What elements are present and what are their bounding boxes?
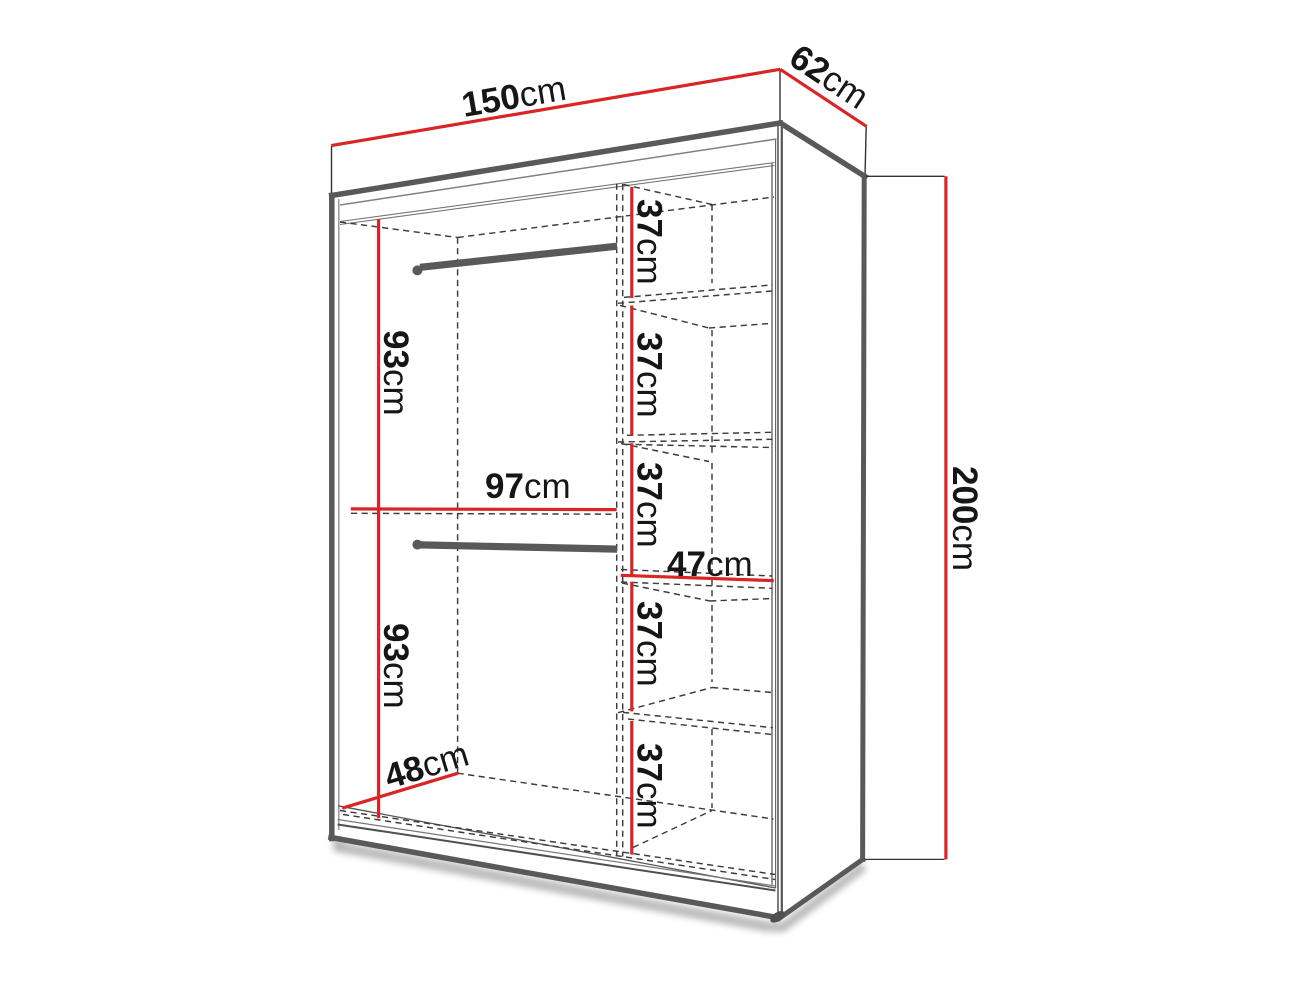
svg-text:37cm: 37cm	[630, 743, 669, 829]
svg-text:37cm: 37cm	[630, 199, 669, 285]
svg-text:37cm: 37cm	[630, 462, 669, 548]
svg-text:37cm: 37cm	[630, 332, 669, 418]
svg-text:97cm: 97cm	[485, 467, 571, 506]
svg-text:37cm: 37cm	[630, 601, 669, 687]
svg-text:47cm: 47cm	[667, 545, 753, 584]
svg-text:93cm: 93cm	[376, 330, 415, 416]
svg-text:200cm: 200cm	[945, 466, 984, 571]
svg-text:93cm: 93cm	[376, 623, 415, 709]
